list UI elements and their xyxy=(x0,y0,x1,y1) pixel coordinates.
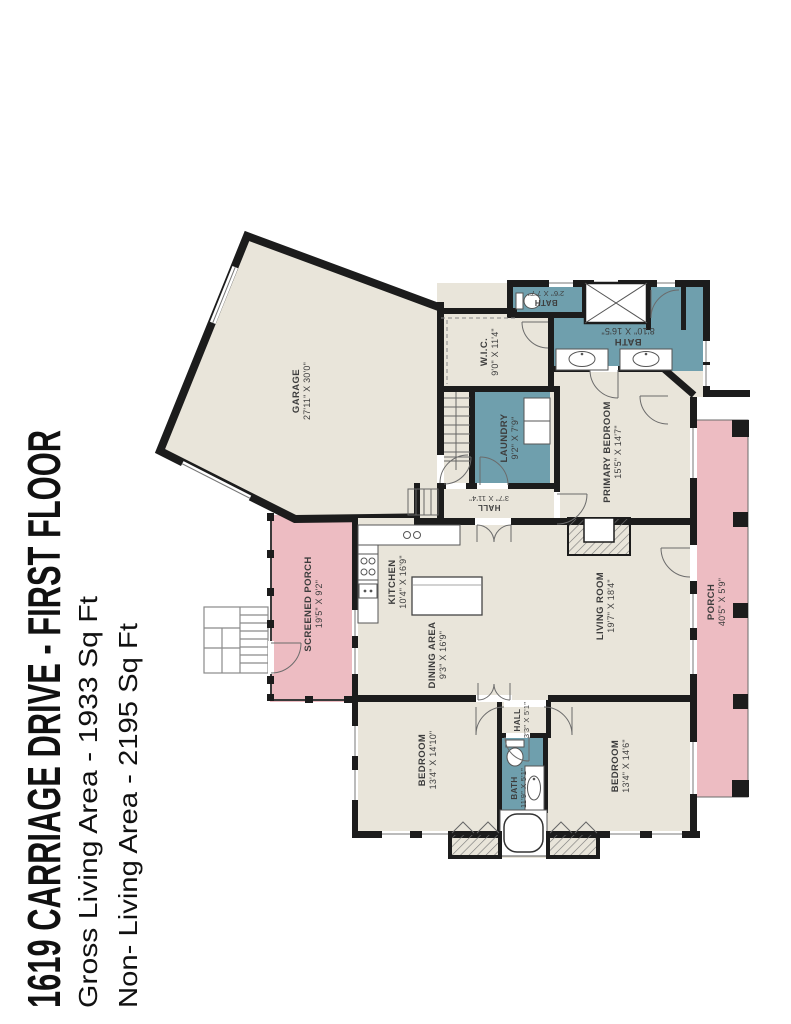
svg-text:3'3" X 5'1": 3'3" X 5'1" xyxy=(522,702,531,738)
label-bedroom-right: BEDROOM 13'4" X 14'6" xyxy=(610,739,631,792)
svg-text:SCREENED PORCH: SCREENED PORCH xyxy=(303,556,314,651)
svg-text:KITCHEN: KITCHEN xyxy=(387,559,398,604)
svg-text:DINING AREA: DINING AREA xyxy=(427,622,438,689)
svg-text:BATH: BATH xyxy=(534,298,557,307)
svg-text:HALL: HALL xyxy=(478,503,501,512)
label-garage: GARAGE 27'11" X 30'0" xyxy=(291,362,312,420)
svg-text:LIVING ROOM: LIVING ROOM xyxy=(595,572,606,640)
room-fills xyxy=(160,236,748,858)
svg-text:15'5" X 14'7": 15'5" X 14'7" xyxy=(613,425,623,478)
svg-text:PORCH: PORCH xyxy=(706,584,717,620)
label-living: LIVING ROOM 19'7" X 18'4" xyxy=(595,572,616,640)
svg-text:27'11" X 30'0": 27'11" X 30'0" xyxy=(302,362,312,420)
svg-text:3'7" X 11'4": 3'7" X 11'4" xyxy=(469,494,509,503)
gross-living-area-label: Gross Living Area - 1933 Sq Ft xyxy=(73,595,103,1008)
porch-column xyxy=(732,780,749,797)
svg-text:BEDROOM: BEDROOM xyxy=(610,740,621,792)
svg-text:BATH: BATH xyxy=(614,336,641,347)
porch-column xyxy=(733,512,748,527)
svg-text:10'4" X 16'9": 10'4" X 16'9" xyxy=(398,555,408,608)
svg-text:9'0" X 11'4": 9'0" X 11'4" xyxy=(490,328,500,376)
svg-text:19'7" X 18'4": 19'7" X 18'4" xyxy=(606,579,616,632)
svg-text:40'5" X 5'9": 40'5" X 5'9" xyxy=(717,578,727,626)
svg-text:BATH: BATH xyxy=(510,776,519,799)
label-bedroom-left: BEDROOM 13'4" X 14'10" xyxy=(417,731,438,790)
label-laundry: LAUNDRY 9'2" X 7'9" xyxy=(499,413,520,462)
floor-plan-page: 1619 CARRIAGE DRIVE - FIRST FLOOR Gross … xyxy=(0,0,791,1024)
svg-text:11'9" X 5'1": 11'9" X 5'1" xyxy=(519,768,528,808)
svg-text:GARAGE: GARAGE xyxy=(291,369,302,413)
label-kitchen: KITCHEN 10'4" X 16'9" xyxy=(387,555,408,608)
svg-text:BEDROOM: BEDROOM xyxy=(417,734,428,786)
svg-text:2'6" X 7'7": 2'6" X 7'7" xyxy=(528,289,564,298)
svg-text:13'4" X 14'10": 13'4" X 14'10" xyxy=(428,731,438,790)
svg-text:W.I.C.: W.I.C. xyxy=(479,338,490,366)
svg-text:9'2" X 7'9": 9'2" X 7'9" xyxy=(510,416,520,459)
title-block: 1619 CARRIAGE DRIVE - FIRST FLOOR Gross … xyxy=(18,430,143,1008)
fireplace xyxy=(568,518,630,555)
label-dining: DINING AREA 9'3" X 16'9" xyxy=(427,622,448,689)
svg-text:13'4" X 14'6": 13'4" X 14'6" xyxy=(621,739,631,792)
label-porch: PORCH 40'5" X 5'9" xyxy=(706,578,727,626)
porch-column xyxy=(732,420,749,437)
shower xyxy=(585,283,647,323)
stove xyxy=(358,554,378,580)
porch-column xyxy=(733,694,748,709)
porch-column xyxy=(733,603,748,618)
kitchen-island xyxy=(412,577,482,615)
svg-text:LAUNDRY: LAUNDRY xyxy=(499,413,510,462)
non-living-area-label: Non- Living Area - 2195 Sq Ft xyxy=(113,622,143,1008)
bathtub xyxy=(504,814,543,852)
exterior-deck-stairs xyxy=(204,607,268,673)
svg-text:PRIMARY BEDROOM: PRIMARY BEDROOM xyxy=(602,401,613,503)
svg-text:19'5" X 9'2": 19'5" X 9'2" xyxy=(314,580,324,628)
svg-text:8'10" X 16'5": 8'10" X 16'5" xyxy=(601,326,654,336)
kitchen-sink xyxy=(359,584,377,598)
svg-text:HALL: HALL xyxy=(513,709,522,732)
floor-plan-drawing: 1619 CARRIAGE DRIVE - FIRST FLOOR Gross … xyxy=(0,0,791,1024)
page-title: 1619 CARRIAGE DRIVE - FIRST FLOOR xyxy=(18,430,70,1008)
screen-door-opening xyxy=(268,641,274,674)
svg-text:9'3" X 16'9": 9'3" X 16'9" xyxy=(438,631,448,679)
washer-dryer xyxy=(524,398,550,444)
